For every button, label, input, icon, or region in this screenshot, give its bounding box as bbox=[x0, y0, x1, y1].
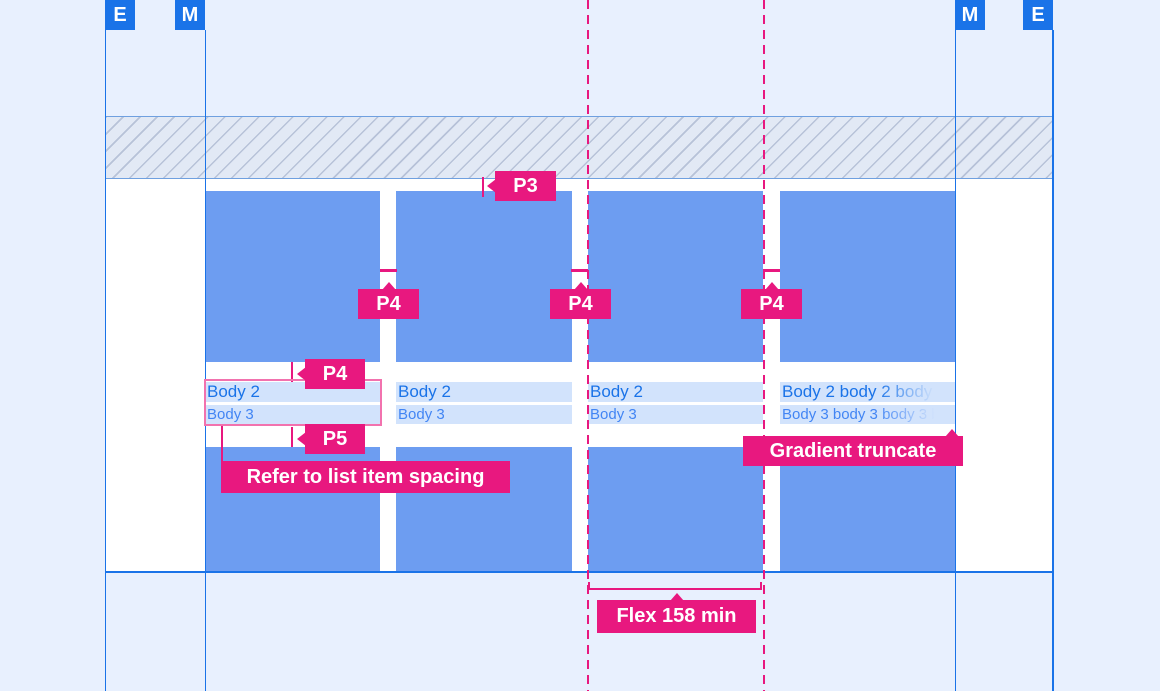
card2-body3-text: Body 3 bbox=[396, 405, 572, 424]
card-image-2 bbox=[396, 191, 572, 362]
card3-body3-text: Body 3 bbox=[588, 405, 763, 424]
p4-gutter3-badge: P4 bbox=[741, 289, 802, 319]
gutter1-measure-line bbox=[380, 269, 397, 272]
p3-measure-tick bbox=[482, 177, 484, 197]
card3-body2-text: Body 2 bbox=[588, 382, 763, 402]
margin-marker-right-outer: E bbox=[1023, 0, 1053, 30]
refer-list-item-spacing-badge: Refer to list item spacing bbox=[221, 461, 510, 493]
gutter3-measure-line bbox=[763, 269, 780, 272]
card2-body2-text: Body 2 bbox=[396, 382, 572, 402]
card2-body2-band: Body 2 bbox=[396, 382, 572, 402]
flex-bracket-line bbox=[588, 588, 762, 590]
gradient-fade-overlay bbox=[875, 382, 955, 402]
card4-body3-band: Body 3 body 3 body 3 body 3 bbox=[780, 405, 955, 424]
p3-spacing-badge: P3 bbox=[495, 171, 556, 201]
keyline-left-edge bbox=[105, 30, 107, 691]
card4-body2-band: Body 2 body 2 body 2 body 2 bbox=[780, 382, 955, 402]
keyline-right-edge bbox=[1052, 30, 1054, 691]
card-image-4 bbox=[780, 191, 955, 362]
margin-marker-left-outer: E bbox=[105, 0, 135, 30]
p4-gutter2-badge: P4 bbox=[550, 289, 611, 319]
card3-body2-band: Body 2 bbox=[588, 382, 763, 402]
card-image-7 bbox=[588, 447, 763, 571]
reserved-area-hatch bbox=[105, 116, 1053, 179]
card-image-1 bbox=[205, 191, 380, 362]
gradient-truncate-badge: Gradient truncate bbox=[743, 436, 963, 466]
refer-leader-line bbox=[221, 426, 223, 462]
gutter2-measure-line bbox=[571, 269, 588, 272]
keyline-left-margin bbox=[205, 30, 207, 691]
gradient-fade-overlay bbox=[875, 405, 955, 424]
card-image-3 bbox=[588, 191, 763, 362]
p5-spacing-badge: P5 bbox=[305, 424, 365, 454]
p4-text-spacing-badge: P4 bbox=[305, 359, 365, 389]
flex-guide-right-dashed-line bbox=[763, 0, 765, 691]
margin-marker-left-inner: M bbox=[175, 0, 205, 30]
card3-body3-band: Body 3 bbox=[588, 405, 763, 424]
keyline-bottom bbox=[105, 571, 1053, 573]
flex-min-width-badge: Flex 158 min bbox=[597, 600, 756, 633]
card2-body3-band: Body 3 bbox=[396, 405, 572, 424]
p4-gutter1-badge: P4 bbox=[358, 289, 419, 319]
margin-marker-right-inner: M bbox=[955, 0, 985, 30]
p5-measure-tick bbox=[291, 427, 293, 447]
keyline-right-margin bbox=[955, 30, 957, 691]
